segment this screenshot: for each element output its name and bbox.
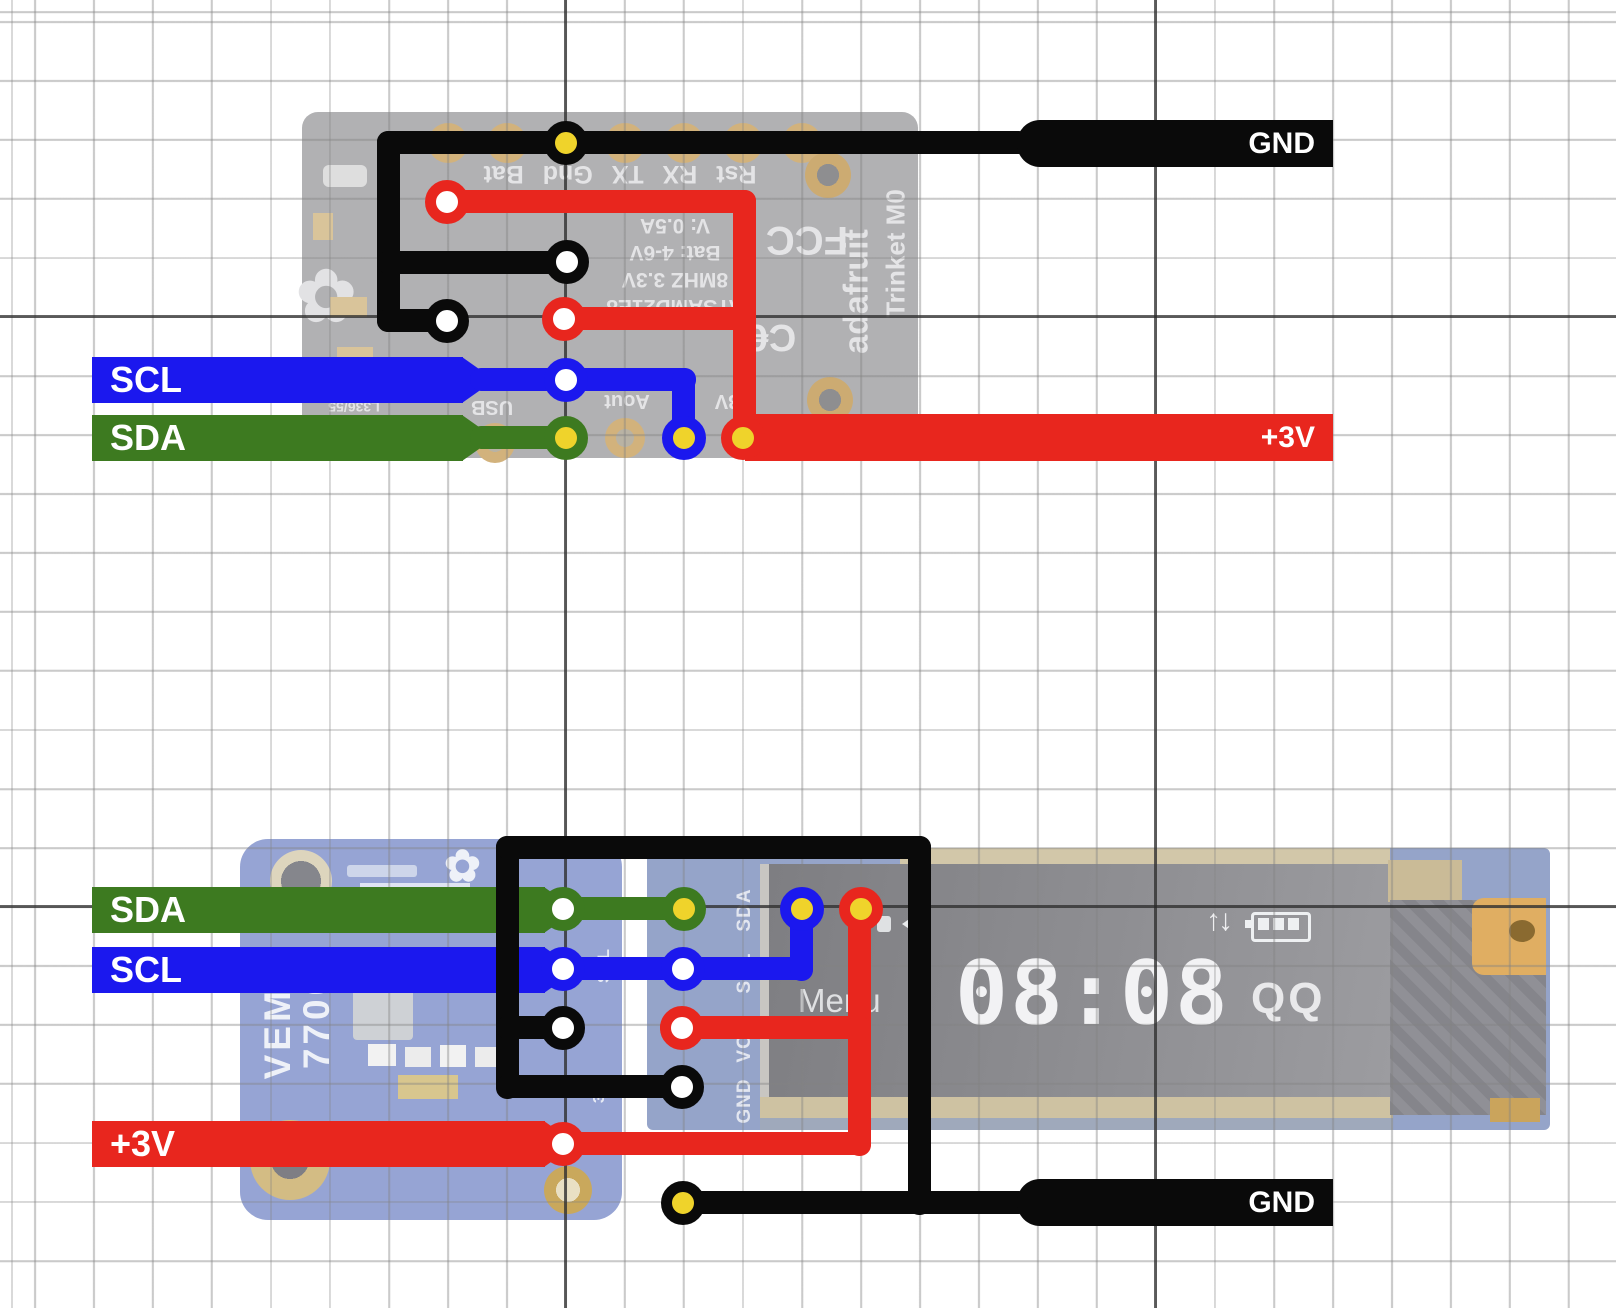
smd-component: [440, 1045, 466, 1067]
gnd-wire-label-top[interactable]: GND: [1017, 120, 1333, 167]
battery-icon: [1251, 912, 1311, 942]
capacitor: [398, 1075, 458, 1099]
pad-veml-power[interactable]: [541, 1122, 585, 1166]
gnd-wire-label-bottom[interactable]: GND: [1017, 1179, 1333, 1226]
silkscreen-mark: [347, 865, 417, 877]
pad-trinket-gnd[interactable]: [544, 121, 588, 165]
oled-pin-label-gnd: GND: [734, 1066, 756, 1136]
pad-veml-scl[interactable]: [541, 947, 585, 991]
flex-gold-tab: [1472, 898, 1546, 975]
pad-oled-gnd-header[interactable]: [660, 1065, 704, 1109]
wiring-diagram-canvas: Rst RX TX Gnd Bat ATSAMD21E88MHZ 3.3VBat…: [0, 0, 1616, 1308]
trinket-model-text: Trinket M0: [881, 169, 912, 339]
screen-status-text: QQ: [1251, 974, 1325, 1024]
pad-oled-sda[interactable]: [662, 887, 706, 931]
aout-pin-label: Aout: [587, 389, 667, 412]
adafruit-flower-icon: ✿: [296, 254, 356, 338]
pad-trinket-3v[interactable]: [542, 297, 586, 341]
screen-time-text: 08:08: [955, 942, 1230, 1045]
oled-display-board[interactable]: Menu 08:08 QQ ↑↓ SDA SCL VCC GND: [647, 848, 1550, 1130]
castellated-pad: [330, 297, 367, 317]
gnd-wire-top-vertical[interactable]: [377, 131, 400, 332]
through-hole: [605, 418, 645, 458]
power-wire-label-bottom[interactable]: +3V: [92, 1121, 545, 1167]
pad-veml-gnd[interactable]: [541, 1006, 585, 1050]
smd-component: [475, 1047, 497, 1067]
gold-contact: [1490, 1098, 1540, 1122]
through-hole-3vo: [544, 1166, 592, 1214]
castellated-pad: [313, 213, 333, 240]
pad-trinket-scl[interactable]: [544, 358, 588, 402]
power-wire-top-branch[interactable]: [564, 307, 756, 330]
smd-component: [368, 1044, 396, 1066]
pad-trinket-pin[interactable]: [545, 240, 589, 284]
pad-gnd-junction[interactable]: [661, 1181, 705, 1225]
light-sensor-chip: [353, 985, 413, 1040]
pad-trinket-sda[interactable]: [544, 416, 588, 460]
pad-veml-sda[interactable]: [541, 887, 585, 931]
pad-oled-vcc[interactable]: [839, 887, 883, 931]
trinket-pin-row-silkscreen: Rst RX TX Gnd Bat: [420, 159, 820, 188]
flex-tab-hole: [1509, 920, 1535, 942]
power-wire-label-top[interactable]: +3V: [745, 414, 1333, 461]
pad-oled-scl[interactable]: [780, 887, 824, 931]
smd-component: [405, 1047, 431, 1067]
mounting-hole: [805, 152, 851, 198]
gnd-wire-top-horizontal[interactable]: [377, 131, 1030, 154]
pad-trinket-pin[interactable]: [425, 299, 469, 343]
scl-wire-label-bottom[interactable]: SCL: [92, 947, 545, 993]
pad-trinket-bat[interactable]: [425, 180, 469, 224]
scl-wire-label-top[interactable]: SCL: [92, 357, 463, 403]
power-wire-top-horizontal[interactable]: [447, 190, 756, 213]
gnd-wire-bottom-top-horizontal[interactable]: [496, 836, 931, 859]
pad-trinket-power-junction[interactable]: [721, 416, 765, 460]
sda-wire-label-bottom[interactable]: SDA: [92, 887, 545, 933]
pad-trinket-scl-junction[interactable]: [662, 416, 706, 460]
power-wire-bottom-horizontal[interactable]: [552, 1132, 871, 1155]
sync-arrows-icon: ↑↓: [1206, 904, 1230, 938]
gnd-wire-bottom-horizontal[interactable]: [683, 1191, 1030, 1214]
pad-scl-via[interactable]: [661, 947, 705, 991]
fcc-logo: FCC: [757, 217, 857, 262]
flex-connector-top: [1388, 860, 1462, 902]
gnd-wire-bottom-left-vertical[interactable]: [496, 836, 519, 1099]
pad-oled-vcc-header[interactable]: [660, 1006, 704, 1050]
sda-wire-label-top[interactable]: SDA: [92, 415, 463, 461]
solder-blob: [323, 165, 367, 187]
gnd-wire-bottom-right-vertical[interactable]: [908, 836, 931, 1215]
oled-pin-label-sda: SDA: [734, 875, 756, 945]
